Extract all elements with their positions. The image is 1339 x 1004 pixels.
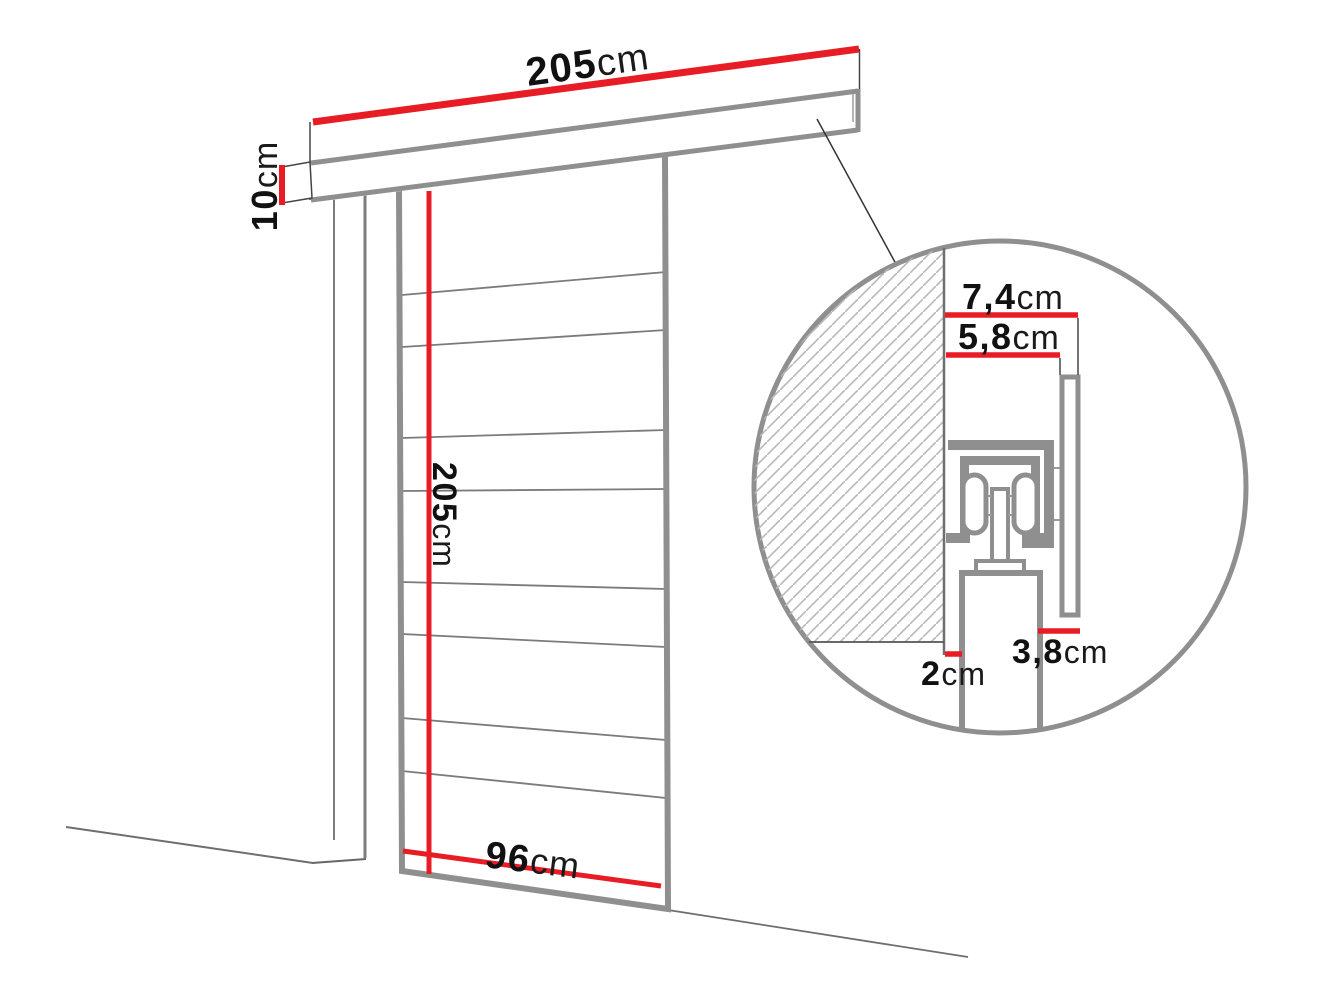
roller-right — [1014, 475, 1037, 533]
track-top-bar — [948, 440, 1054, 450]
doorway-jamb — [312, 194, 366, 863]
sliding-door-diagram: 205cm 10cm 205cm 96cm — [0, 0, 1339, 1004]
detail-label-74: 7,4cm — [962, 276, 1064, 317]
detail-label-38: 3,8cm — [1012, 633, 1108, 671]
floor-line-left — [66, 827, 313, 863]
carriage-left-foot — [946, 533, 970, 543]
detail-circle-view: 7,4cm 5,8cm 3,8cm 2cm — [754, 241, 1246, 733]
wall-hatch-section — [754, 248, 944, 642]
rail-height-label: 10cm — [244, 141, 285, 231]
diagram-canvas: 205cm 10cm 205cm 96cm — [0, 0, 1339, 1004]
rail-left-end-cap — [282, 162, 312, 203]
hanger-bolt — [992, 489, 1008, 565]
door-height-label: 205cm — [425, 462, 463, 568]
detail-label-2: 2cm — [921, 655, 986, 693]
carriage-right-foot — [1031, 533, 1052, 543]
roller-left — [963, 475, 986, 533]
cover-plate — [1062, 377, 1078, 615]
carriage-top-bar — [960, 456, 1040, 465]
detail-leader-line — [817, 119, 896, 264]
jamb-bottom-edge — [312, 859, 366, 863]
floor-line-right — [668, 910, 968, 957]
track-right-leg — [1044, 440, 1054, 548]
detail-label-58: 5,8cm — [958, 316, 1060, 357]
